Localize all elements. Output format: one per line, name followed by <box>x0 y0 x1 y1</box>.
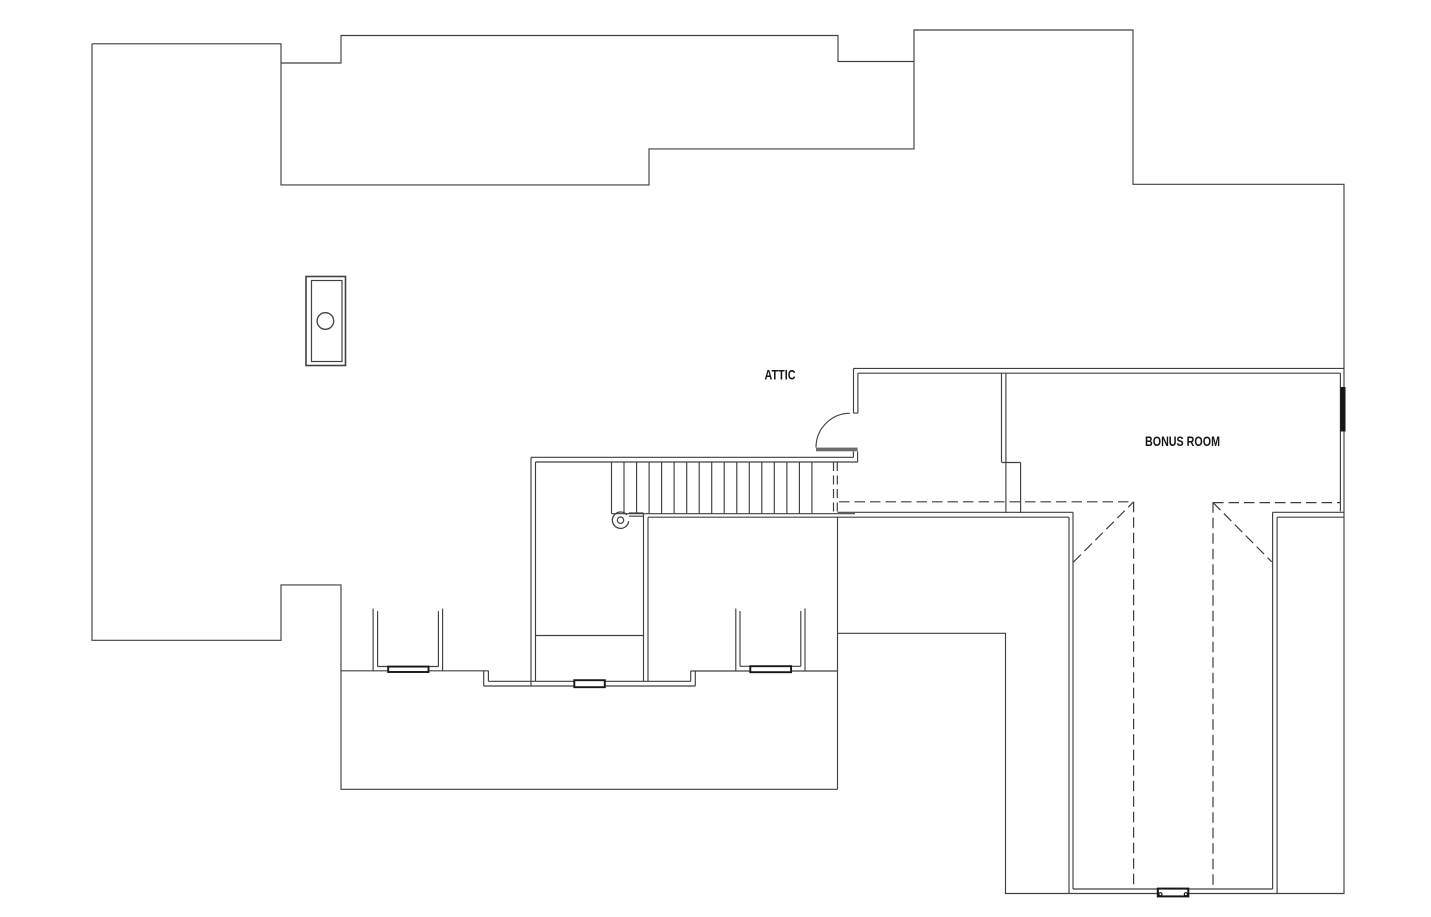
svg-text:BONUS ROOM: BONUS ROOM <box>1145 433 1220 449</box>
svg-text:ATTIC: ATTIC <box>765 367 796 383</box>
